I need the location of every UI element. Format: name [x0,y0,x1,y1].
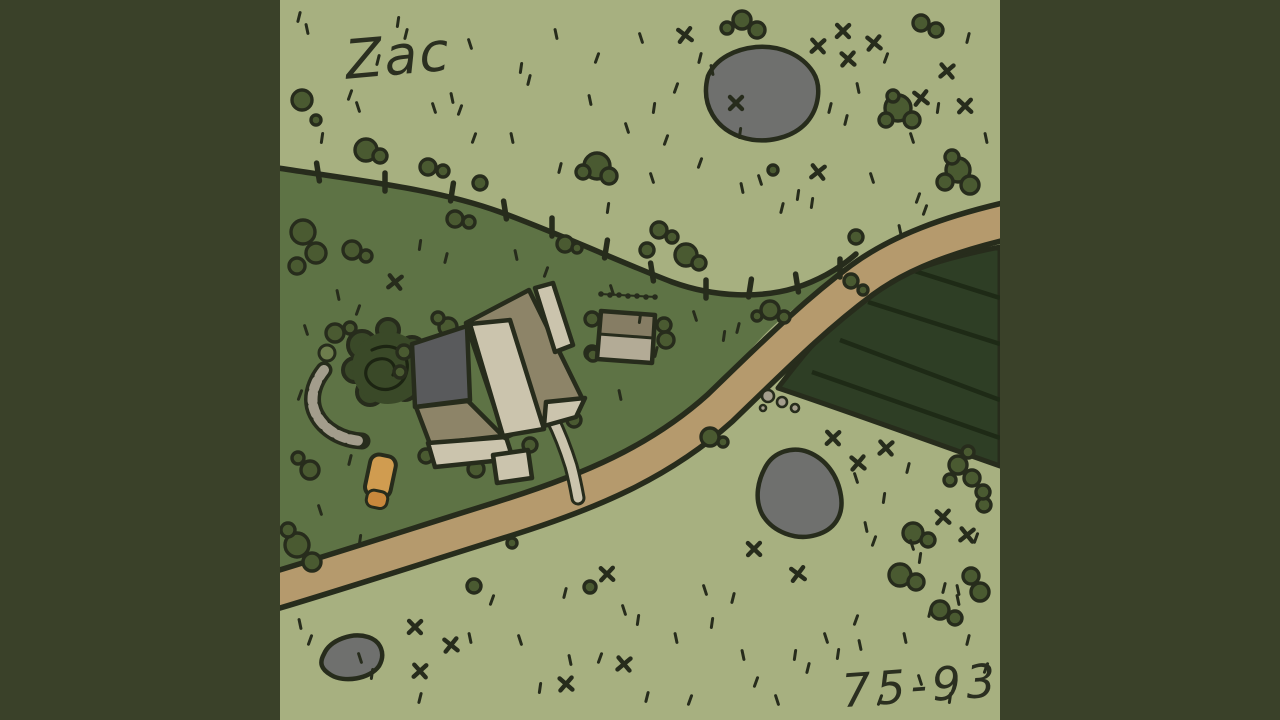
grass-tick [807,664,809,673]
bush [778,311,790,323]
clothesline-dot [634,293,640,299]
grass-tick [739,129,740,138]
bush [303,553,321,571]
bush [281,523,295,537]
grass-tick [699,54,701,63]
grass-tick [511,134,513,143]
grass-tick [957,596,959,605]
bush [473,176,487,190]
grass-tick [515,251,517,260]
grass-tick [321,134,322,143]
bush [913,15,929,31]
bush [437,165,449,177]
light-bush [319,345,335,361]
grass-tick [564,589,566,598]
bush [752,311,762,321]
grass-tick [451,94,453,103]
grass-tick [741,184,743,193]
bush [887,90,899,102]
clothesline-dot [625,293,631,299]
grass-tick [985,134,987,143]
bush [658,332,674,348]
bush [666,231,678,243]
pond-top [706,47,818,141]
grass-tick [811,199,812,208]
grass-tick [829,104,831,113]
bush [292,452,304,464]
grass-tick [919,554,920,563]
album-art: Zac 75-93 [280,0,1000,720]
bush [971,583,989,601]
grass-tick [929,608,931,617]
grass-tick [539,684,540,693]
grass-tick [742,651,744,660]
house-path-stub [493,450,532,483]
grass-tick [646,693,648,702]
bush [292,90,312,110]
bush [963,568,979,584]
bush [572,243,582,253]
grass-tick [957,586,959,595]
fence-post [451,183,454,201]
fence-post [651,263,654,281]
fence-post [796,274,799,292]
stone [791,404,799,412]
bush [908,574,924,590]
bush [768,165,778,175]
bush [701,428,719,446]
grass-tick [419,694,421,703]
grass-tick [732,594,734,603]
bush [584,581,596,593]
fence-post [504,201,507,219]
bush [945,150,959,164]
grass-tick [337,291,339,300]
grass-tick [904,634,906,643]
grass-tick [857,84,859,93]
bush [397,345,411,359]
bush [964,470,980,486]
bush [931,601,949,619]
bush [904,112,920,128]
grass-tick [445,254,447,263]
grass-tick [943,584,945,593]
grass-tick [737,324,739,333]
stone [762,390,774,402]
grass-tick [589,96,591,105]
grass-tick [675,634,677,643]
grass-tick [298,13,300,22]
bush [373,149,387,163]
grass-tick [723,332,724,341]
bush [692,256,706,270]
bush [961,176,979,194]
grass-tick [469,634,471,643]
bush [576,165,590,179]
bush [447,211,463,227]
clothesline-dot [616,292,622,298]
bush [291,220,315,244]
grass-tick [359,536,360,545]
grass-tick [797,191,798,200]
bush [749,22,765,38]
grass-tick [883,494,884,503]
bush [721,22,733,34]
grass-tick [794,651,795,660]
bush [844,274,858,288]
fence-post [605,240,608,258]
grass-tick [837,650,838,659]
artist-signature: Zac [341,20,454,92]
grass-tick [711,66,713,75]
grass-tick [559,164,561,173]
bush [640,243,654,257]
bush [962,446,974,458]
bush [718,437,728,447]
page-background: Zac 75-93 [0,0,1280,720]
bush [301,461,319,479]
bush [394,366,406,378]
bush [976,485,990,499]
bush [360,250,372,262]
scene [280,0,1000,720]
grass-tick [349,456,351,465]
bush [306,243,326,263]
grass-tick [639,314,640,323]
fence-post [317,163,320,181]
clothesline-dot [643,294,649,300]
bush [326,324,344,342]
bush [420,159,436,175]
grass-tick [967,636,969,645]
bush [289,258,305,274]
bush [657,318,671,332]
bush [507,538,517,548]
grass-tick [907,464,909,473]
bush [921,533,935,547]
bush [948,611,962,625]
bush [858,285,868,295]
grass-tick [637,616,638,625]
grass-tick [655,348,657,357]
grass-tick [299,620,301,629]
grass-tick [419,241,420,250]
stone [777,397,787,407]
bush [879,113,893,127]
bush [343,241,361,259]
bush [601,168,617,184]
bush [929,23,943,37]
grass-tick [937,104,938,113]
bush [761,301,779,319]
bush [344,322,356,334]
clothesline-dot [598,291,604,297]
grass-tick [569,656,571,665]
car-hood [365,489,389,510]
bush [944,474,956,486]
grass-tick [781,204,783,213]
grass-tick [859,641,861,650]
grass-tick [899,226,901,235]
grass-tick [845,116,847,125]
grass-tick [371,670,372,679]
bush [432,312,444,324]
grass-tick [306,25,308,34]
years-label: 75-93 [840,653,1000,718]
fence-post [749,279,752,297]
grass-tick [653,104,654,113]
grass-tick [711,619,712,628]
clothesline-dot [652,294,658,300]
grass-tick [607,204,608,213]
bush [585,312,599,326]
stone [760,405,766,411]
grass-tick [528,76,530,85]
bush [937,174,953,190]
grass-tick [865,523,867,532]
bush [311,115,321,125]
grass-tick [520,64,521,73]
grass-tick [619,391,621,400]
bush [467,579,481,593]
bush [849,230,863,244]
grass-tick [555,30,557,39]
grass-tick [967,34,969,43]
bush [463,216,475,228]
